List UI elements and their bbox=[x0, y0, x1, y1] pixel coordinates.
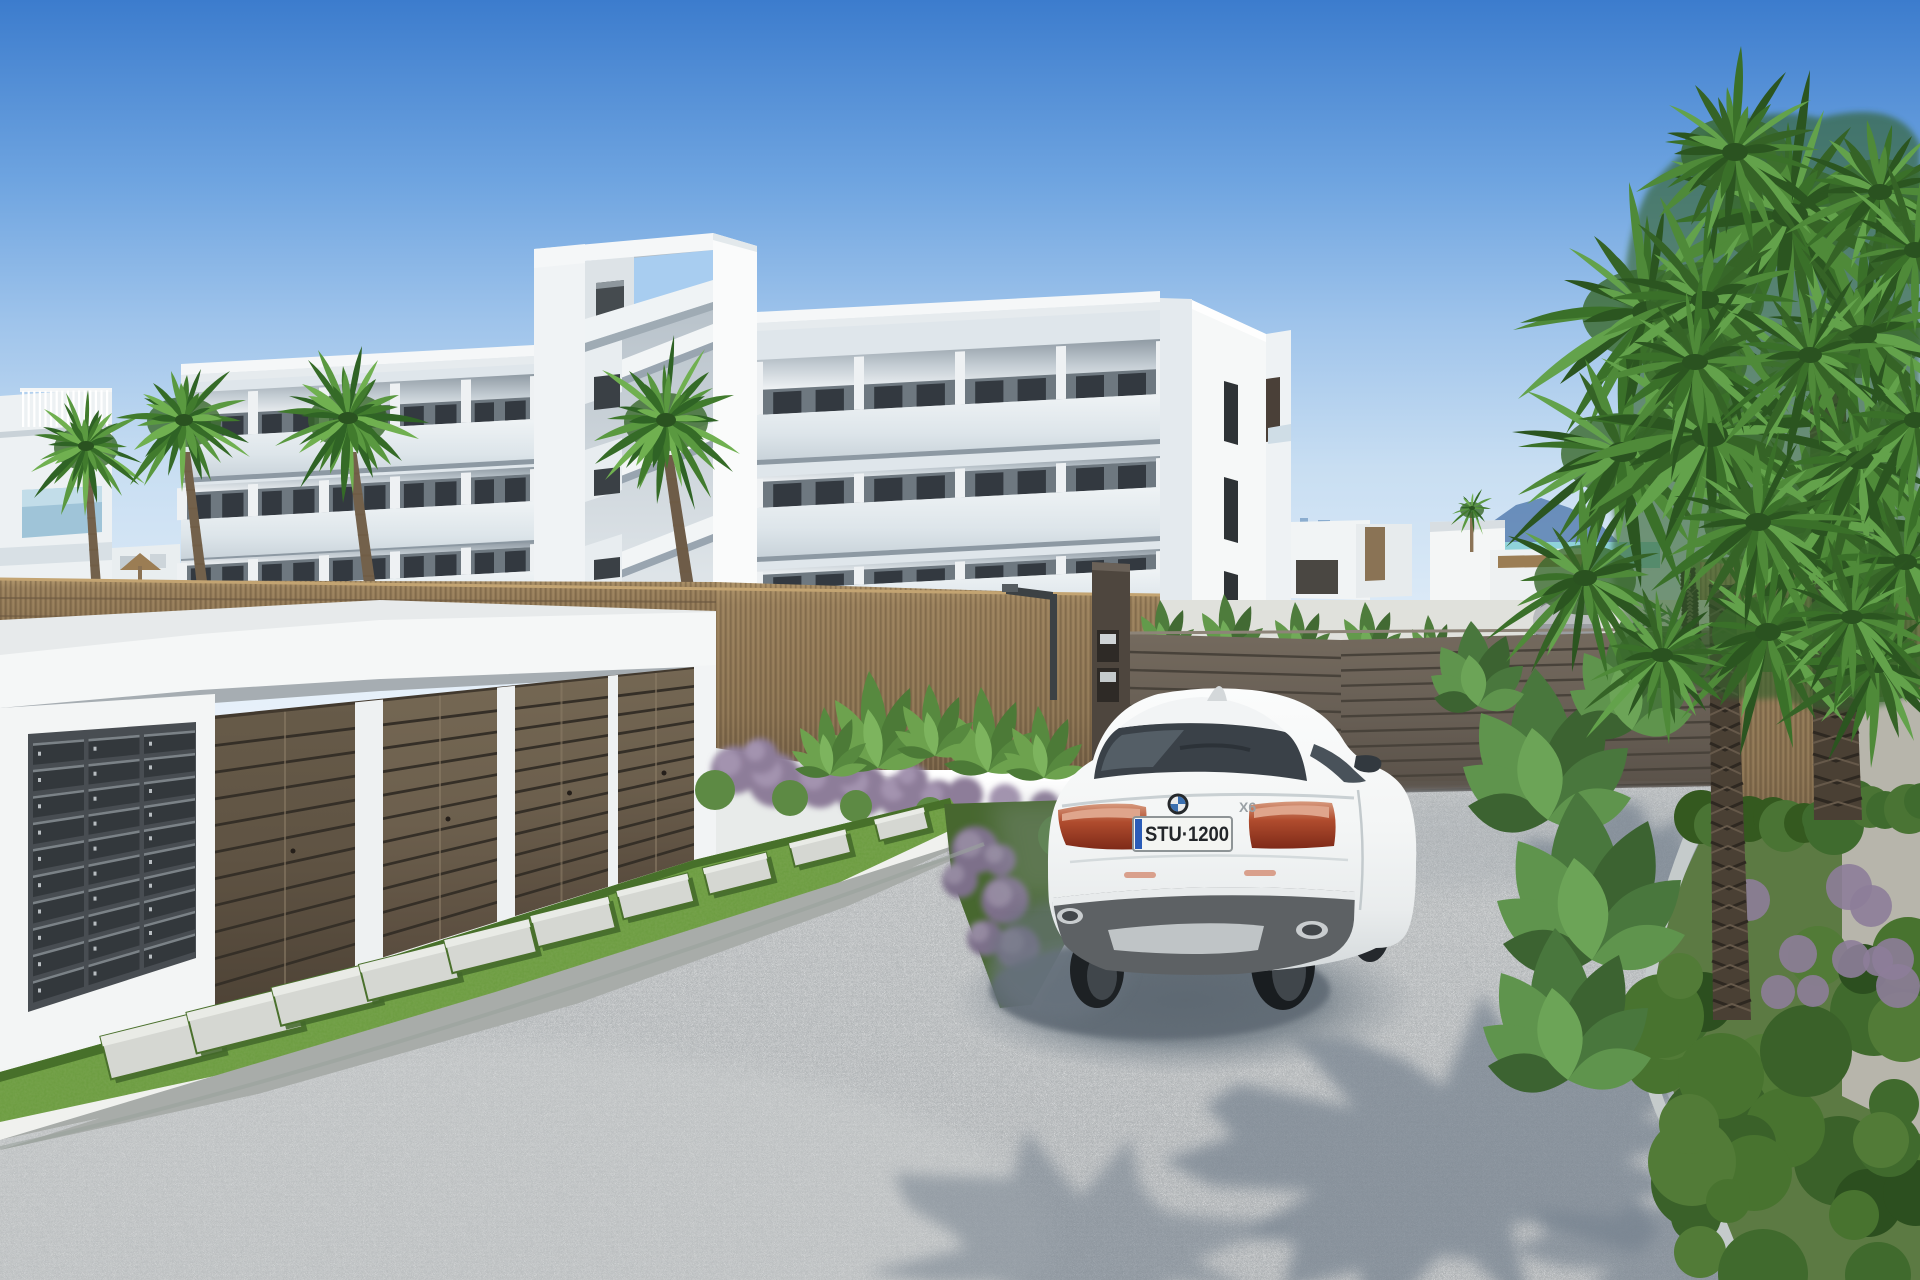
svg-text:STU·1200: STU·1200 bbox=[1145, 823, 1229, 846]
svg-text:X6: X6 bbox=[1239, 799, 1256, 815]
